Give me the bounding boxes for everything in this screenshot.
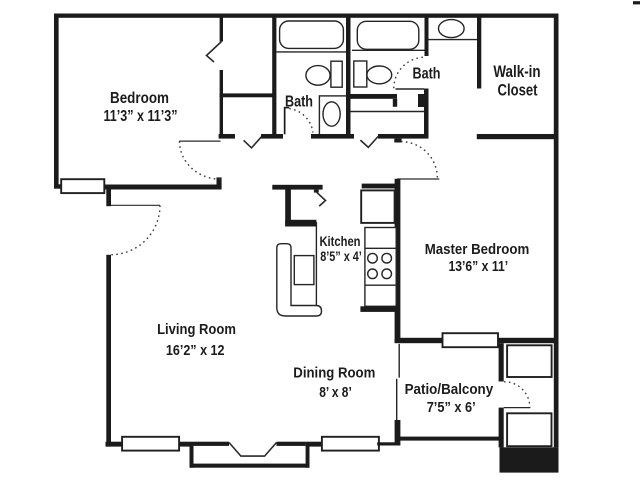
svg-text:13’6” x 11’: 13’6” x 11’ (448, 259, 508, 275)
svg-text:Walk-in: Walk-in (493, 62, 540, 81)
svg-text:Bedroom: Bedroom (110, 90, 169, 107)
svg-text:Master Bedroom: Master Bedroom (425, 242, 530, 258)
svg-text:8’5” x 4’: 8’5” x 4’ (320, 249, 362, 264)
svg-text:Closet: Closet (498, 80, 538, 99)
svg-text:Bath: Bath (413, 66, 441, 83)
svg-text:Patio/Balcony: Patio/Balcony (405, 381, 494, 398)
svg-text:8’ x 8’: 8’ x 8’ (319, 384, 352, 401)
svg-text:Dining Room: Dining Room (293, 365, 375, 382)
svg-text:7’5” x 6’: 7’5” x 6’ (427, 399, 476, 416)
svg-text:11’3” x 11’3”: 11’3” x 11’3” (104, 108, 178, 125)
svg-text:Living Room: Living Room (157, 321, 236, 338)
svg-text:16’2” x 12: 16’2” x 12 (166, 342, 225, 359)
svg-text:Kitchen: Kitchen (319, 234, 360, 249)
